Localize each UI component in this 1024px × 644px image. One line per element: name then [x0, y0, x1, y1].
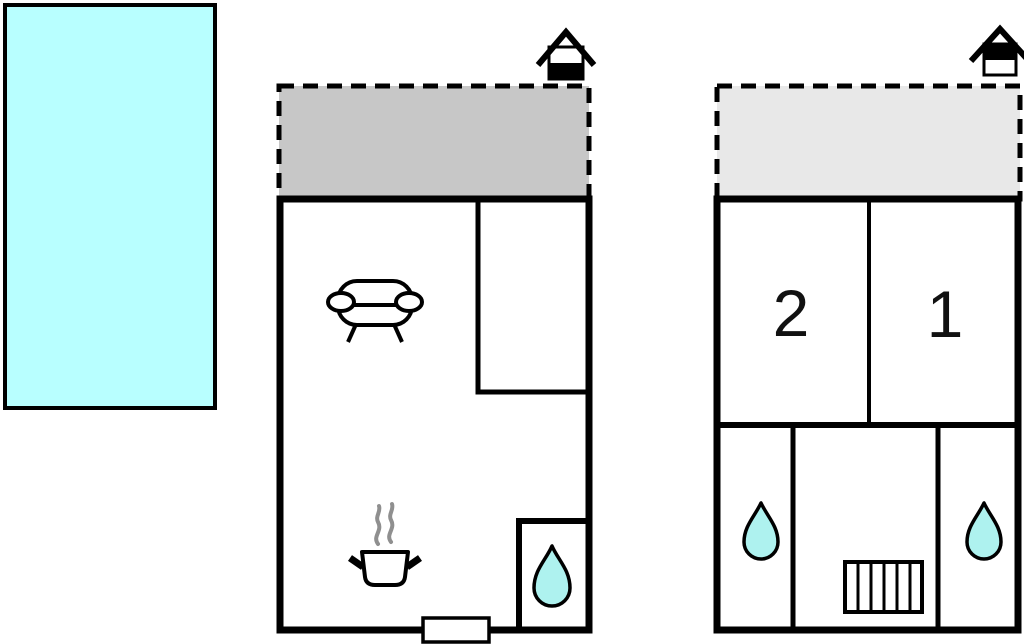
terrace-upper [717, 86, 1020, 199]
sofa-armrest [396, 293, 422, 311]
house-ground-level-fill [548, 63, 584, 80]
terrace-ground [279, 86, 589, 199]
room-1-label: 1 [927, 277, 964, 351]
ground-floor-plan [279, 32, 594, 642]
room-2-label: 2 [773, 276, 810, 350]
upper-floor-plan: 2 1 [717, 29, 1024, 630]
sofa-armrest [328, 293, 354, 311]
pot-body [362, 552, 408, 585]
stairs-icon [845, 562, 922, 612]
swimming-pool [5, 5, 215, 408]
floor-plan-page: 2 1 [0, 0, 1024, 644]
entrance-step [423, 618, 489, 642]
house-icon-ground-floor [538, 32, 594, 80]
house-icon-upper-floor [971, 29, 1024, 75]
floor-plan-canvas: 2 1 [0, 0, 1024, 644]
